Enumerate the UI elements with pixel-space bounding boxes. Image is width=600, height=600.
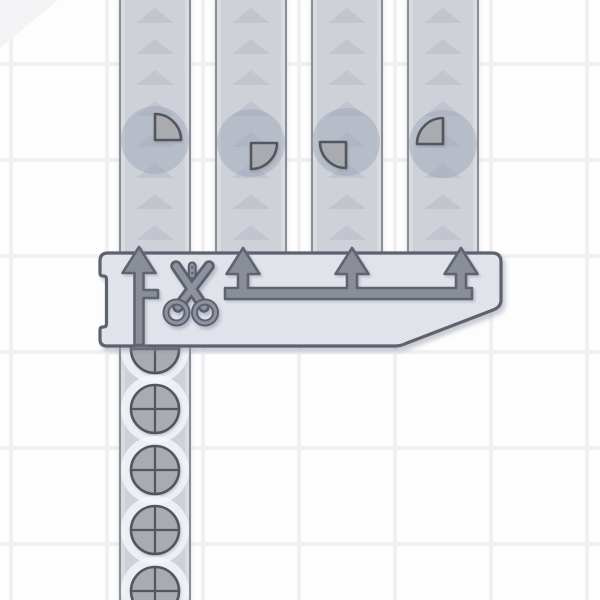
- belt-arrow-icon: [424, 8, 462, 23]
- game-viewport: [0, 0, 600, 600]
- belt-arrow-icon: [232, 39, 270, 54]
- belt-arrow-icon: [328, 225, 366, 240]
- belt-arrow-icon: [424, 225, 462, 240]
- shape-item-quarter-top-left: [415, 116, 471, 172]
- background-grid[interactable]: [0, 0, 600, 600]
- belt-arrow-icon: [424, 70, 462, 85]
- shape-item-circle-quartered: [127, 381, 183, 437]
- belt-arrow-icon: [424, 39, 462, 54]
- belt-arrow-icon: [424, 194, 462, 209]
- belt-arrow-icon: [136, 194, 174, 209]
- belt-arrow-icon: [328, 194, 366, 209]
- shape-item-circle-quartered: [127, 442, 183, 498]
- belt-arrow-icon: [136, 225, 174, 240]
- belt-arrow-icon: [232, 70, 270, 85]
- belt-arrow-icon: [328, 39, 366, 54]
- belt-arrow-icon: [232, 225, 270, 240]
- shape-item-circle-quartered: [127, 563, 183, 600]
- belt-arrow-icon: [136, 39, 174, 54]
- belt-arrow-icon: [136, 70, 174, 85]
- shape-item-circle-quartered: [127, 502, 183, 558]
- shape-item-quarter-top-right: [127, 112, 183, 168]
- shape-item-quarter-bottom-left: [318, 114, 374, 170]
- belt-arrow-icon: [232, 194, 270, 209]
- belt-arrow-icon: [328, 70, 366, 85]
- belt-arrow-icon: [136, 8, 174, 23]
- shape-item-circle-quartered: [127, 321, 183, 377]
- belt-arrow-icon: [328, 8, 366, 23]
- shape-item-quarter-bottom-right: [223, 115, 279, 171]
- belt-arrow-icon: [232, 8, 270, 23]
